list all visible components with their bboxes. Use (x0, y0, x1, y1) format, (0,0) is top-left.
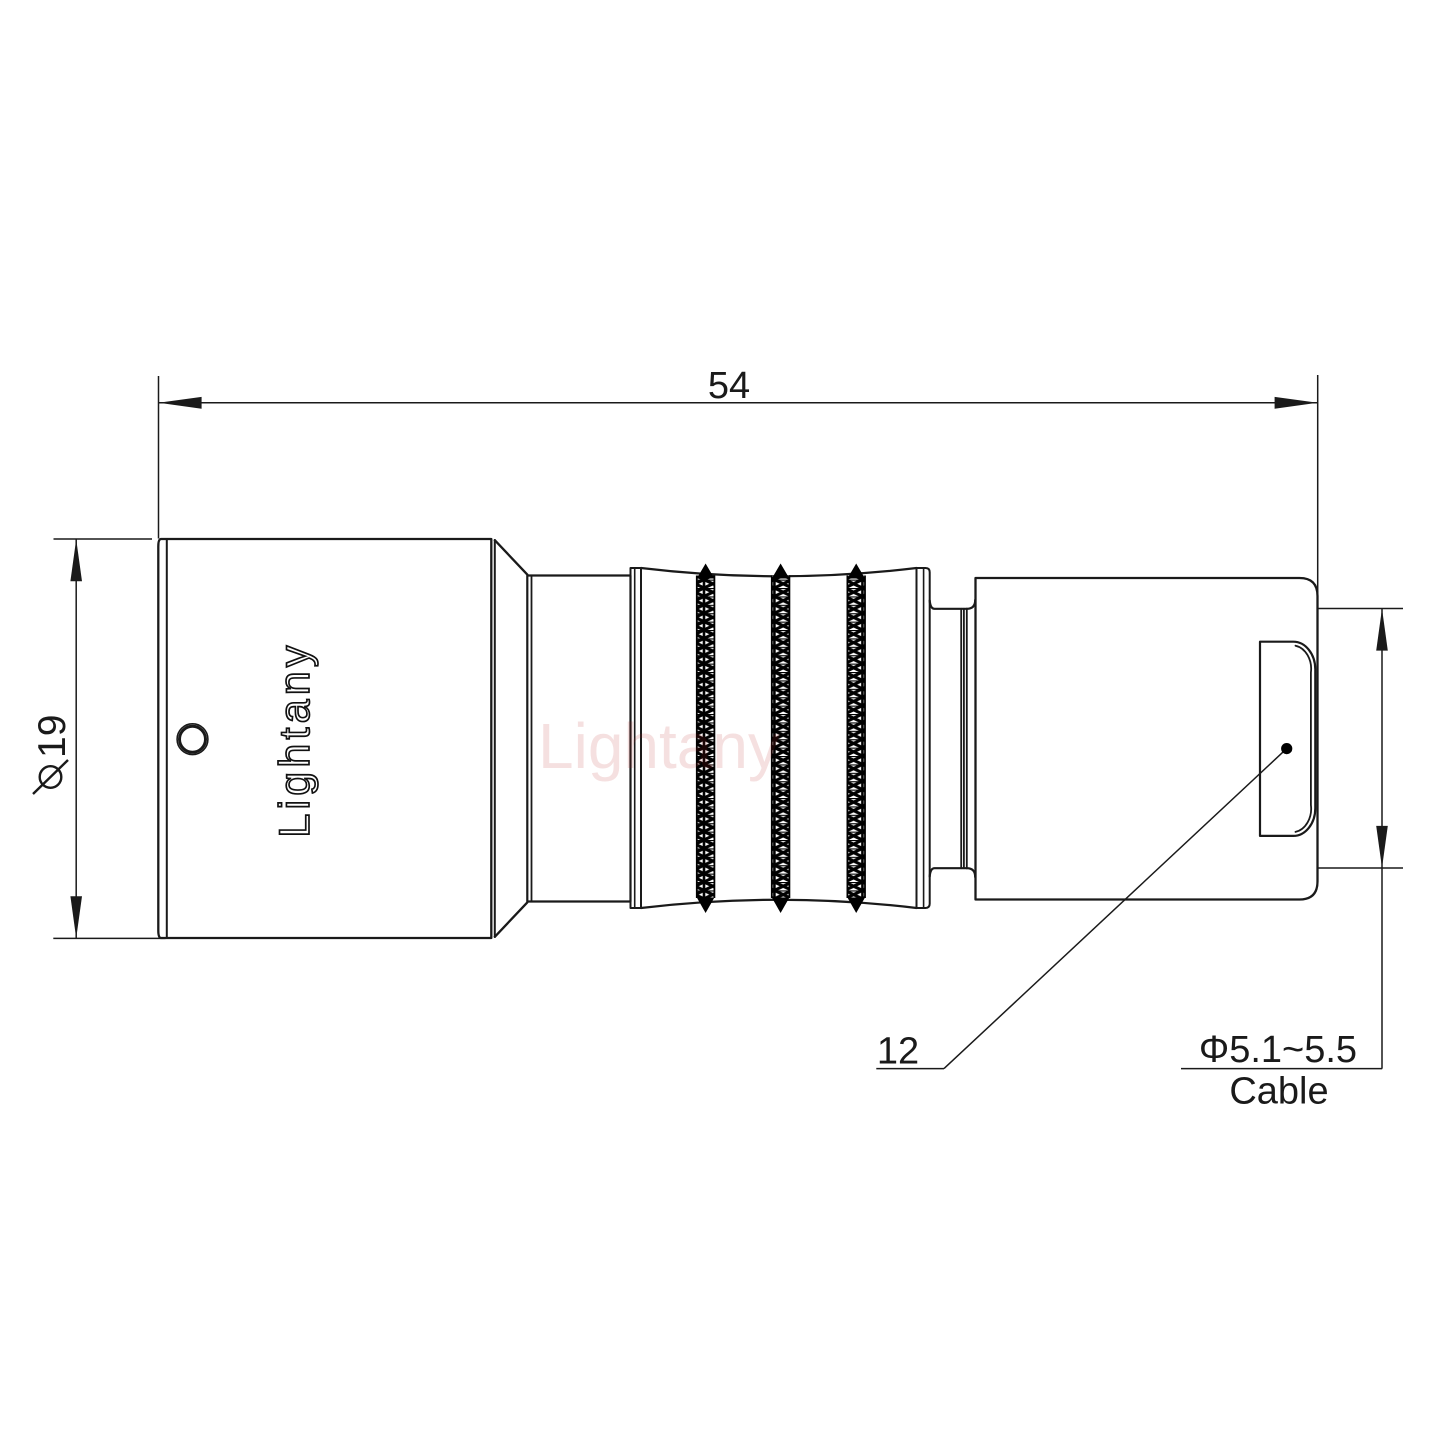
svg-text:Lightany: Lightany (271, 641, 319, 837)
svg-text:54: 54 (708, 365, 750, 407)
svg-text:Cable: Cable (1229, 1071, 1328, 1113)
svg-text:12: 12 (877, 1031, 919, 1073)
svg-text:19: 19 (31, 715, 74, 758)
svg-text:Φ5.1~5.5: Φ5.1~5.5 (1199, 1029, 1357, 1071)
svg-text:Lightany: Lightany (538, 710, 780, 782)
